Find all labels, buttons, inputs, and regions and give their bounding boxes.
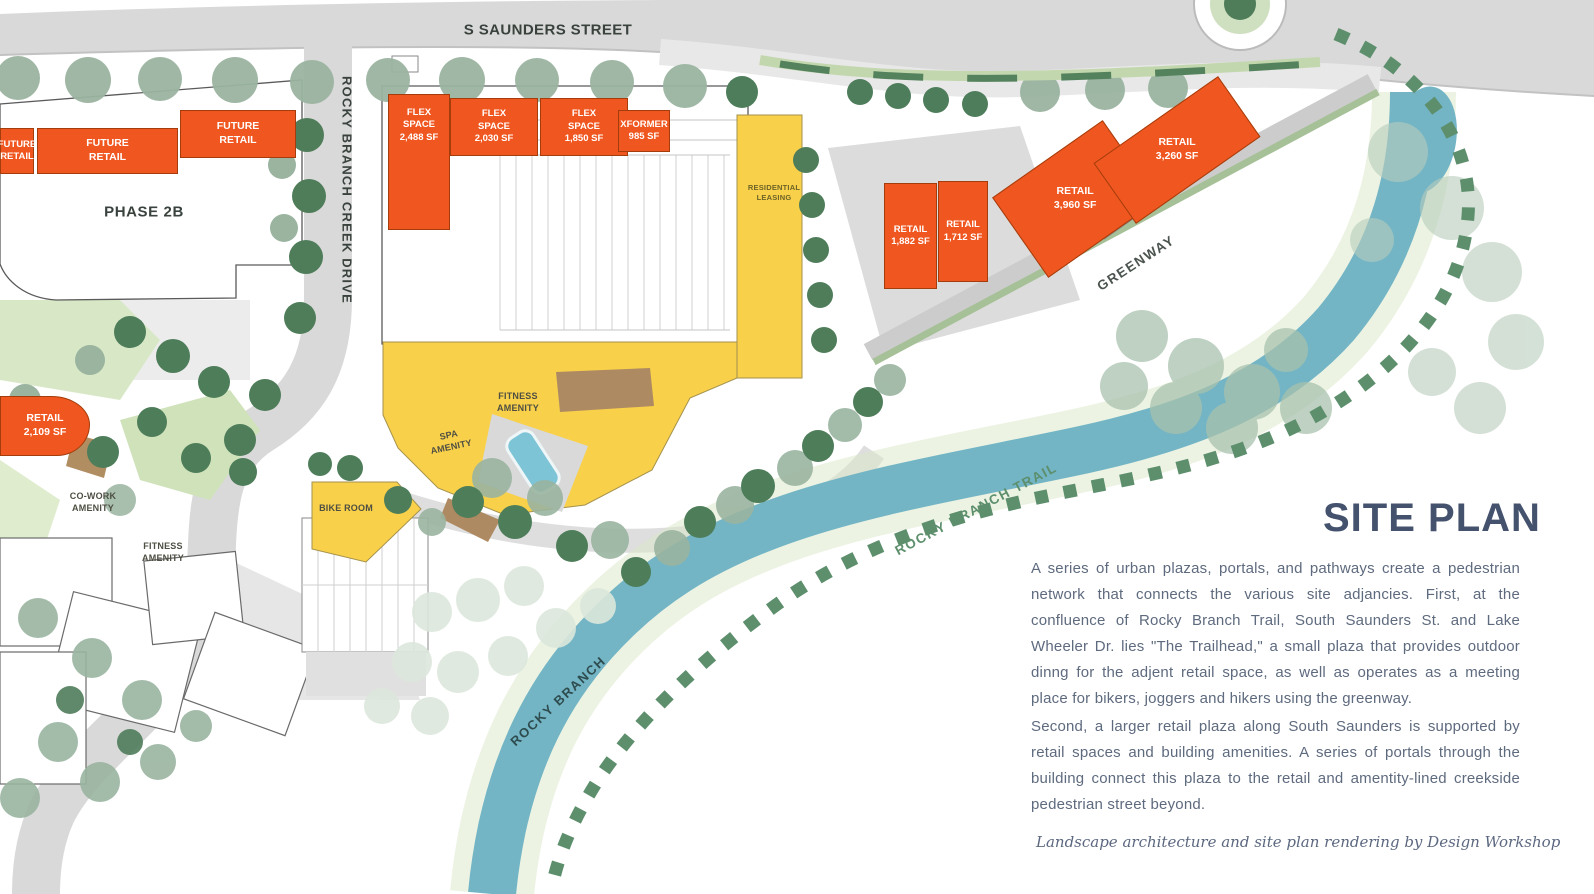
co-work-amenity-label: CO-WORK AMENITY [70,490,116,514]
building-retail-1882-label: RETAIL 1,882 SF [891,224,930,249]
site-plan-page: FUTURE RETAIL FUTURE RETAIL FUTURE RETAI… [0,0,1594,894]
building-future-retail-3-label: FUTURE RETAIL [217,120,260,147]
building-retail-2109-label: RETAIL 2,109 SF [24,412,67,439]
building-future-retail-1-label: FUTURE RETAIL [0,139,36,164]
page-title: SITE PLAN [1323,496,1541,541]
residential-leasing-label: RESIDENTIAL LEASING [748,183,800,203]
building-retail-1882: RETAIL 1,882 SF [884,183,937,289]
description-paragraph-2: Second, a larger retail plaza along Sout… [1031,714,1520,818]
street-label-s-saunders: S SAUNDERS STREET [464,22,633,39]
phase-2b-label: PHASE 2B [104,204,184,221]
bike-room-label: BIKE ROOM [319,502,373,514]
building-xformer-label: XFORMER 985 SF [620,119,668,144]
building-retail-3260-label: RETAIL 3,260 SF [1156,136,1199,163]
building-xformer: XFORMER 985 SF [618,110,670,152]
building-retail-1712: RETAIL 1,712 SF [938,181,988,282]
fitness-amenity-center-label: FITNESS AMENITY [497,390,539,414]
credit-line: Landscape architecture and site plan ren… [1036,833,1560,851]
building-retail-3960-label: RETAIL 3,960 SF [1054,185,1097,212]
building-retail-2109: RETAIL 2,109 SF [0,396,90,456]
building-future-retail-1: FUTURE RETAIL [0,128,34,174]
building-flex-space-2: FLEX SPACE 2,030 SF [450,98,538,156]
building-flex-space-3: FLEX SPACE 1,850 SF [540,98,628,156]
building-future-retail-2-label: FUTURE RETAIL [86,137,129,164]
building-retail-1712-label: RETAIL 1,712 SF [944,219,983,244]
building-flex-space-1-label: FLEX SPACE 2,488 SF [400,95,439,144]
street-label-rocky-branch-creek-drive: ROCKY BRANCH CREEK DRIVE [340,76,355,304]
fitness-amenity-left-label: FITNESS AMENITY [142,540,184,564]
building-future-retail-2: FUTURE RETAIL [37,128,178,174]
building-future-retail-3: FUTURE RETAIL [180,110,296,158]
description-paragraph-1: A series of urban plazas, portals, and p… [1031,556,1520,712]
building-flex-space-3-label: FLEX SPACE 1,850 SF [565,108,604,145]
building-flex-space-2-label: FLEX SPACE 2,030 SF [475,108,514,145]
building-flex-space-1: FLEX SPACE 2,488 SF [388,94,450,230]
